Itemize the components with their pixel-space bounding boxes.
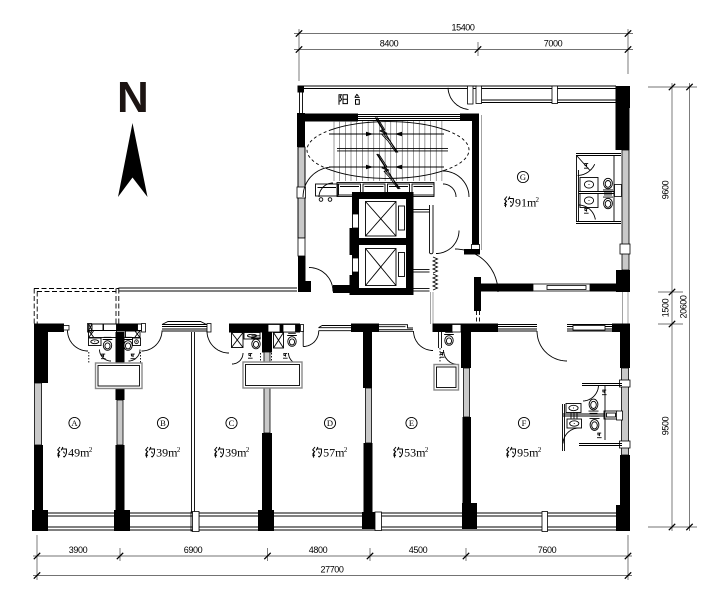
svg-text:3900: 3900	[69, 545, 88, 555]
svg-text:49m: 49m	[68, 446, 90, 460]
svg-text:1500: 1500	[661, 298, 671, 317]
svg-text:2: 2	[89, 446, 93, 454]
svg-text:4800: 4800	[309, 545, 328, 555]
svg-text:57m: 57m	[323, 446, 345, 460]
svg-text:A: A	[71, 418, 78, 428]
svg-text:2: 2	[536, 196, 540, 204]
svg-text:27700: 27700	[320, 565, 343, 575]
svg-text:95m: 95m	[517, 446, 539, 460]
svg-text:2: 2	[538, 446, 542, 454]
svg-text:D: D	[327, 418, 333, 428]
svg-text:6900: 6900	[184, 545, 203, 555]
svg-text:39m: 39m	[225, 446, 247, 460]
svg-text:4500: 4500	[409, 545, 428, 555]
svg-text:2: 2	[344, 446, 348, 454]
svg-text:7600: 7600	[538, 545, 557, 555]
svg-text:C: C	[229, 418, 235, 428]
svg-text:2: 2	[425, 446, 429, 454]
svg-text:39m: 39m	[156, 446, 178, 460]
svg-text:9600: 9600	[661, 180, 671, 199]
svg-text:N: N	[117, 73, 149, 122]
svg-text:8400: 8400	[380, 39, 399, 49]
svg-text:2: 2	[246, 446, 250, 454]
svg-text:91m: 91m	[515, 196, 537, 210]
svg-text:F: F	[522, 418, 527, 428]
svg-text:53m: 53m	[404, 446, 426, 460]
svg-text:15400: 15400	[451, 23, 474, 33]
svg-text:B: B	[160, 418, 166, 428]
svg-text:E: E	[409, 418, 414, 428]
svg-text:20600: 20600	[679, 295, 689, 318]
svg-text:9500: 9500	[661, 416, 671, 435]
svg-text:G: G	[520, 172, 526, 182]
svg-text:2: 2	[177, 446, 181, 454]
svg-text:7000: 7000	[544, 39, 563, 49]
